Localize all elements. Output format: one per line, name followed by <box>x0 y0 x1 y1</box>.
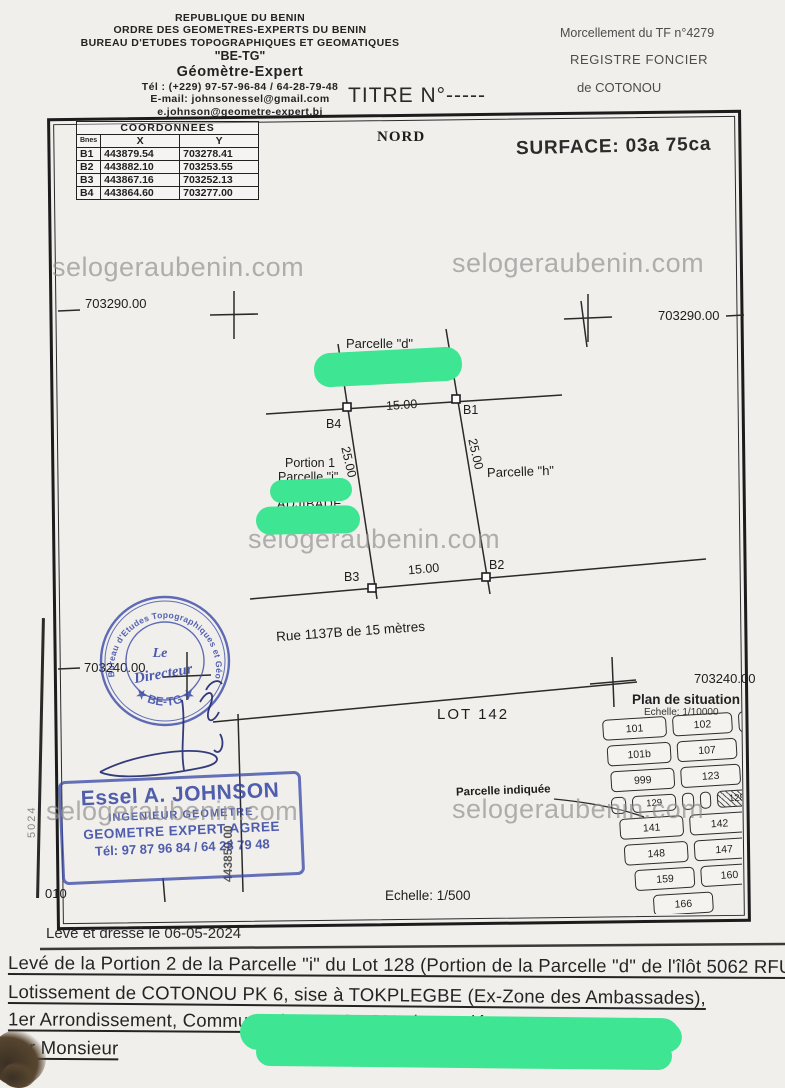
redaction-requester-2 <box>256 1038 672 1070</box>
round-stamp-le: Le <box>152 646 168 661</box>
redaction-owner-i <box>256 505 360 535</box>
svg-text:Bureau d'Etudes Topographiques: Bureau d'Etudes Topographiques et Géomat… <box>0 0 224 680</box>
round-stamp-directeur: Directeur <box>132 661 194 687</box>
svg-text:★ BE-TG ★: ★ BE-TG ★ <box>133 685 197 708</box>
scanned-survey-document: { "letterhead": { "line1": "REPUBLIQUE D… <box>0 0 785 1080</box>
surveyor-stamp-box: Essel A. JOHNSON INGENIEUR GEOMETRE GEOM… <box>58 771 305 886</box>
watermark: selogeraubenin.com <box>52 252 304 283</box>
watermark: selogeraubenin.com <box>46 796 298 827</box>
round-stamp-betg: ★ BE-TG ★ <box>133 685 197 708</box>
watermark: selogeraubenin.com <box>452 248 704 279</box>
round-stamp-ring-text: Bureau d'Etudes Topographiques et Géomat… <box>0 0 224 680</box>
redaction-ref-i <box>270 478 353 504</box>
watermark: selogeraubenin.com <box>452 794 704 825</box>
